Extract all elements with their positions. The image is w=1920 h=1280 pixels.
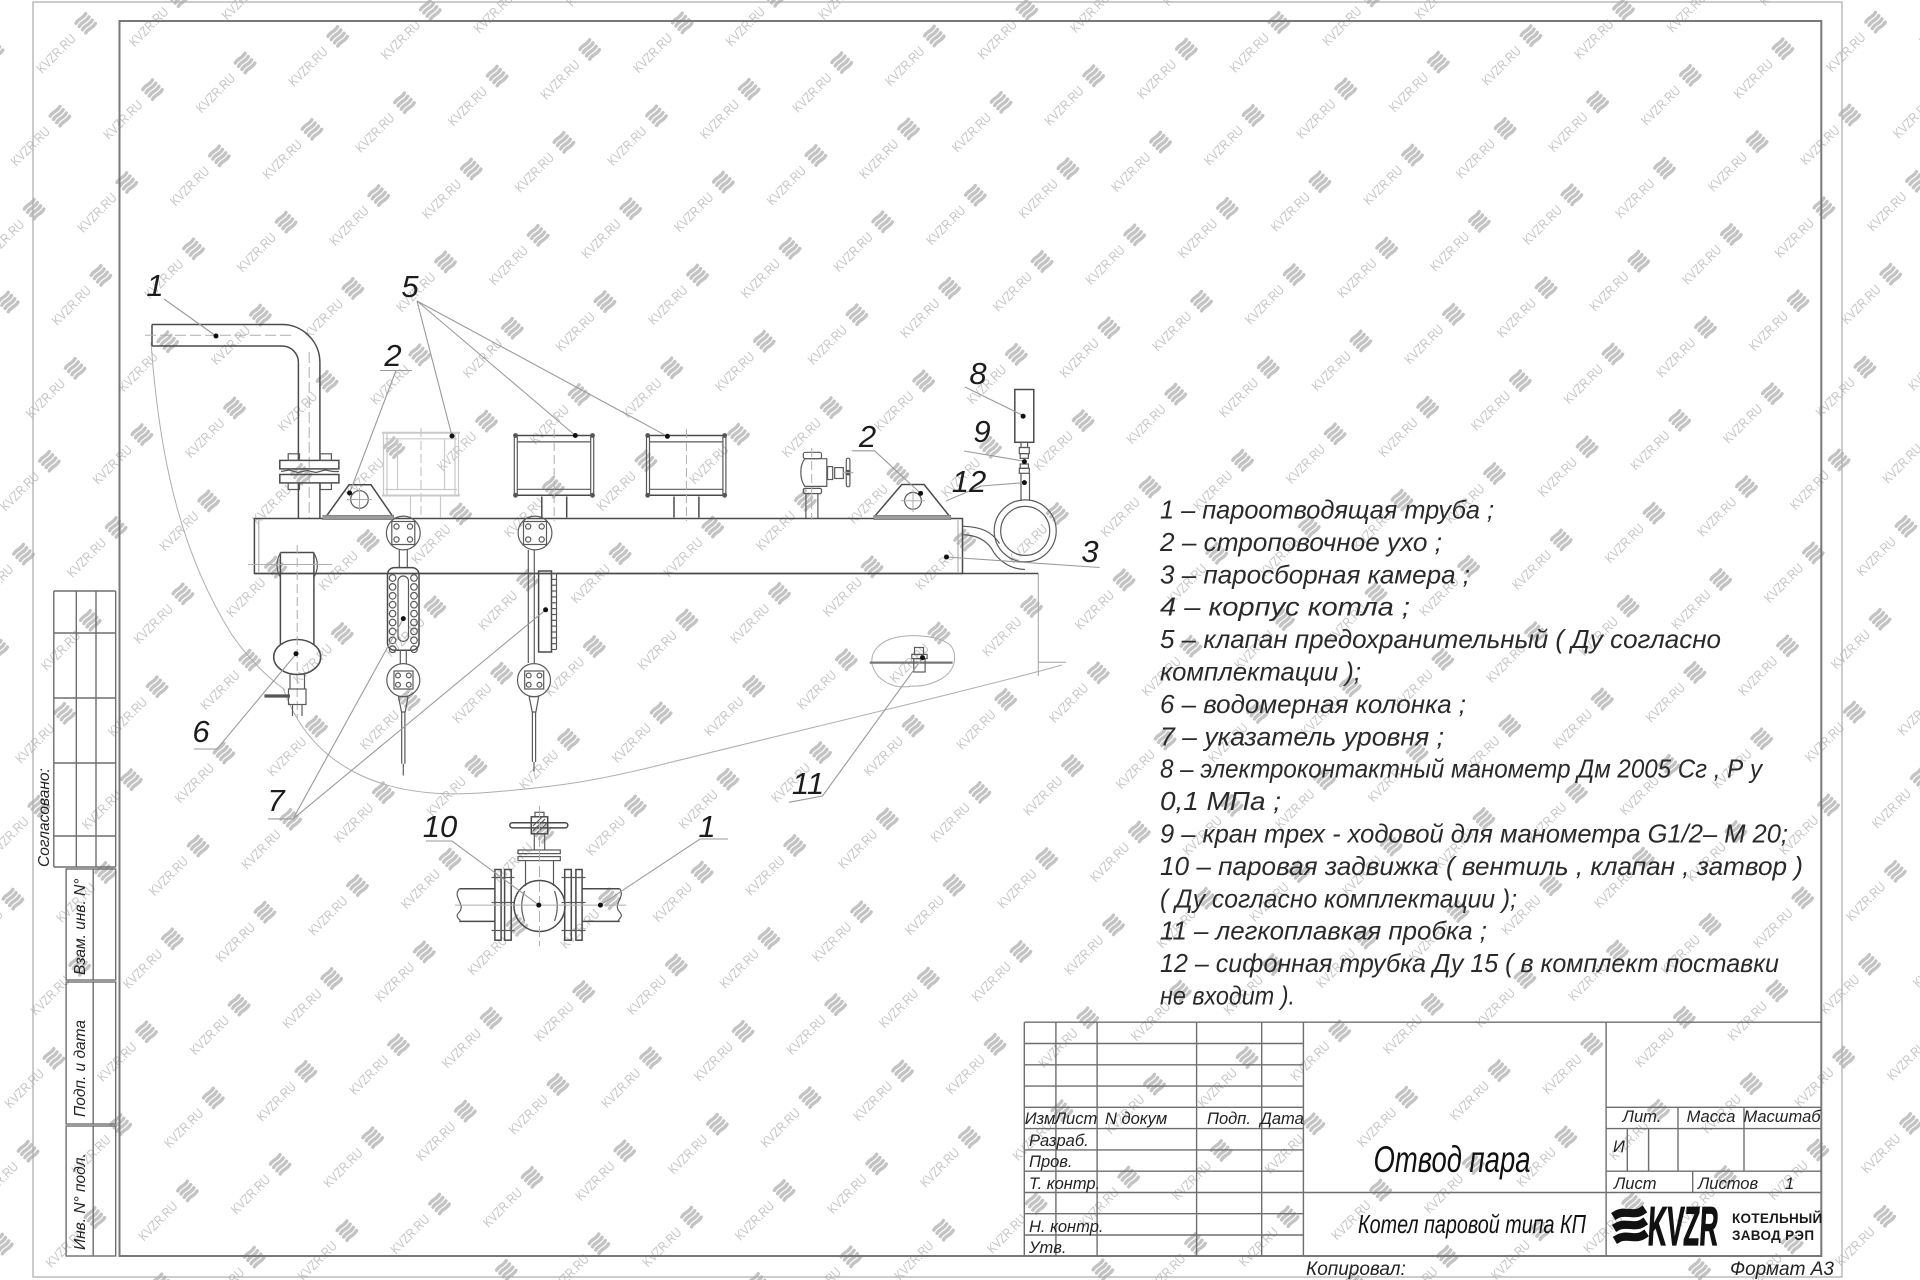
svg-text:комплектации );: комплектации ); [1160,657,1361,687]
svg-text:10: 10 [423,809,457,844]
svg-text:N докум: N докум [1105,1110,1167,1128]
svg-text:Т. контр.: Т. контр. [1029,1175,1100,1193]
svg-text:Формат А3: Формат А3 [1730,1259,1834,1280]
svg-text:3: 3 [1081,534,1098,569]
svg-text:2 – строповочное ухо ;: 2 – строповочное ухо ; [1159,527,1442,557]
svg-text:11 – легкоплавкая пробка ;: 11 – легкоплавкая пробка ; [1160,916,1487,946]
svg-text:6: 6 [192,714,210,749]
svg-text:Котел паровой типа КП: Котел паровой типа КП [1358,1209,1586,1239]
svg-text:Изм: Изм [1025,1110,1056,1128]
svg-text:2: 2 [383,338,401,373]
svg-text:1: 1 [1785,1175,1794,1193]
svg-text:3 – паросборная камера ;: 3 – паросборная камера ; [1160,559,1470,589]
svg-text:4 – корпус котла ;: 4 – корпус котла ; [1160,592,1410,622]
svg-text:КОТЕЛЬНЫЙ: КОТЕЛЬНЫЙ [1732,1211,1823,1226]
svg-text:Отвод пара: Отвод пара [1374,1139,1531,1180]
svg-text:Подп.: Подп. [1207,1110,1251,1128]
svg-text:1: 1 [146,268,163,303]
svg-text:Масштаб: Масштаб [1743,1108,1821,1126]
svg-text:5: 5 [401,269,419,304]
svg-text:8 – электроконтактный манометр: 8 – электроконтактный манометр Дм 2005 С… [1160,754,1764,784]
svg-text:1: 1 [698,809,715,844]
svg-text:5 – клапан предохранительный: 5 – клапан предохранительный ( Ду соглас… [1160,624,1721,654]
svg-text:11: 11 [792,766,824,801]
svg-text:Лист: Лист [1613,1175,1656,1193]
svg-text:Копировал:: Копировал: [1306,1259,1406,1280]
svg-text:Взам. инв. N°: Взам. инв. N° [72,879,89,975]
svg-text:12: 12 [952,464,986,499]
svg-text:6 – водомерная колонка ;: 6 – водомерная колонка ; [1160,689,1466,719]
svg-text:2: 2 [858,419,876,454]
svg-text:( Ду согласно комплектации ): ( Ду согласно комплектации ); [1160,883,1517,913]
svg-text:0,1 МПа ;: 0,1 МПа ; [1160,786,1281,816]
svg-text:Лист: Лист [1054,1110,1097,1128]
svg-text:Согласовано:: Согласовано: [36,768,53,867]
svg-text:Лит.: Лит. [1622,1108,1662,1126]
svg-text:Листов: Листов [1697,1175,1758,1193]
svg-text:7: 7 [267,783,286,818]
svg-text:Масса: Масса [1687,1108,1736,1126]
svg-text:Подп. и дата: Подп. и дата [72,1020,89,1117]
svg-text:Дата: Дата [1258,1110,1304,1128]
svg-text:Н. контр.: Н. контр. [1029,1218,1103,1236]
svg-text:7 – указатель уровня ;: 7 – указатель уровня ; [1160,721,1444,751]
svg-text:9: 9 [973,414,990,449]
svg-text:KVZR: KVZR [1646,1196,1720,1257]
svg-text:8: 8 [969,356,987,391]
svg-text:Пров.: Пров. [1029,1153,1073,1171]
svg-text:Инв. N° подл.: Инв. N° подл. [72,1153,89,1250]
svg-text:Разраб.: Разраб. [1029,1132,1089,1150]
svg-text:ЗАВОД РЭП: ЗАВОД РЭП [1732,1228,1814,1243]
svg-text:10 – паровая задвижка ( вент: 10 – паровая задвижка ( вентиль , клапан… [1160,851,1803,881]
svg-text:1 – пароотводящая труба ;: 1 – пароотводящая труба ; [1160,495,1494,525]
svg-text:Утв.: Утв. [1028,1239,1067,1257]
svg-text:не входит ).: не входит ). [1160,981,1295,1011]
svg-text:12 – сифонная трубка Ду 15 (: 12 – сифонная трубка Ду 15 ( в комплект … [1160,948,1779,978]
svg-text:И: И [1613,1138,1625,1156]
svg-text:9 – кран трех - ходовой для м: 9 – кран трех - ходовой для манометра G1… [1160,819,1788,849]
